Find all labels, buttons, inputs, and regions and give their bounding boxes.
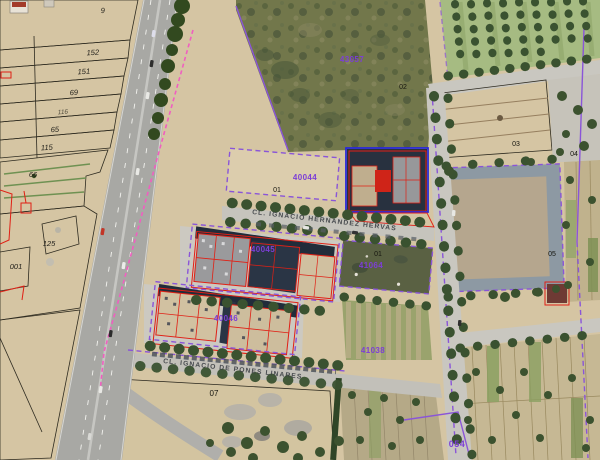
- ref-label-43057: 43057: [340, 55, 364, 64]
- ref-label-40045: 40045: [251, 245, 275, 254]
- parcel-label-116: 116: [57, 109, 68, 117]
- block-label-05: 05: [548, 251, 556, 258]
- ref-label-40046: 40046: [214, 314, 238, 323]
- plots-bottomright: [456, 334, 600, 460]
- ref-label-054: 054: [449, 439, 466, 449]
- plots-gardens-small: [342, 300, 432, 360]
- ref-label-40044: 40044: [293, 173, 317, 182]
- block-label-04: 04: [570, 151, 578, 158]
- parcel-label-66: 66: [29, 170, 38, 179]
- parcel-label-115: 115: [41, 143, 54, 153]
- block-label-02: 02: [399, 84, 407, 91]
- red-building-part: [375, 170, 391, 192]
- parcel-label-151: 151: [77, 67, 90, 77]
- ref-label-41064: 41064: [359, 261, 383, 270]
- block-label-01b: 01: [374, 251, 382, 258]
- block-label-03: 03: [512, 141, 520, 148]
- parcel-label-07: 07: [210, 389, 219, 398]
- ref-label-41038: 41038: [361, 346, 385, 355]
- parcel-label-69: 69: [69, 88, 79, 98]
- map-canvas[interactable]: 9 152 151 69 116 65 115 66 125 001 07 01…: [0, 0, 600, 460]
- parcel-label-65: 65: [50, 125, 60, 135]
- parcel-label-125: 125: [43, 239, 56, 248]
- aerial-map: 9 152 151 69 116 65 115 66 125 001 07 01…: [0, 0, 600, 460]
- paved-area-topright: [548, 74, 600, 162]
- parcel-label-152: 152: [86, 48, 100, 58]
- parcel-label-001: 001: [10, 262, 23, 271]
- farm-building-roof: [12, 2, 26, 7]
- block-label-01a: 01: [273, 187, 281, 194]
